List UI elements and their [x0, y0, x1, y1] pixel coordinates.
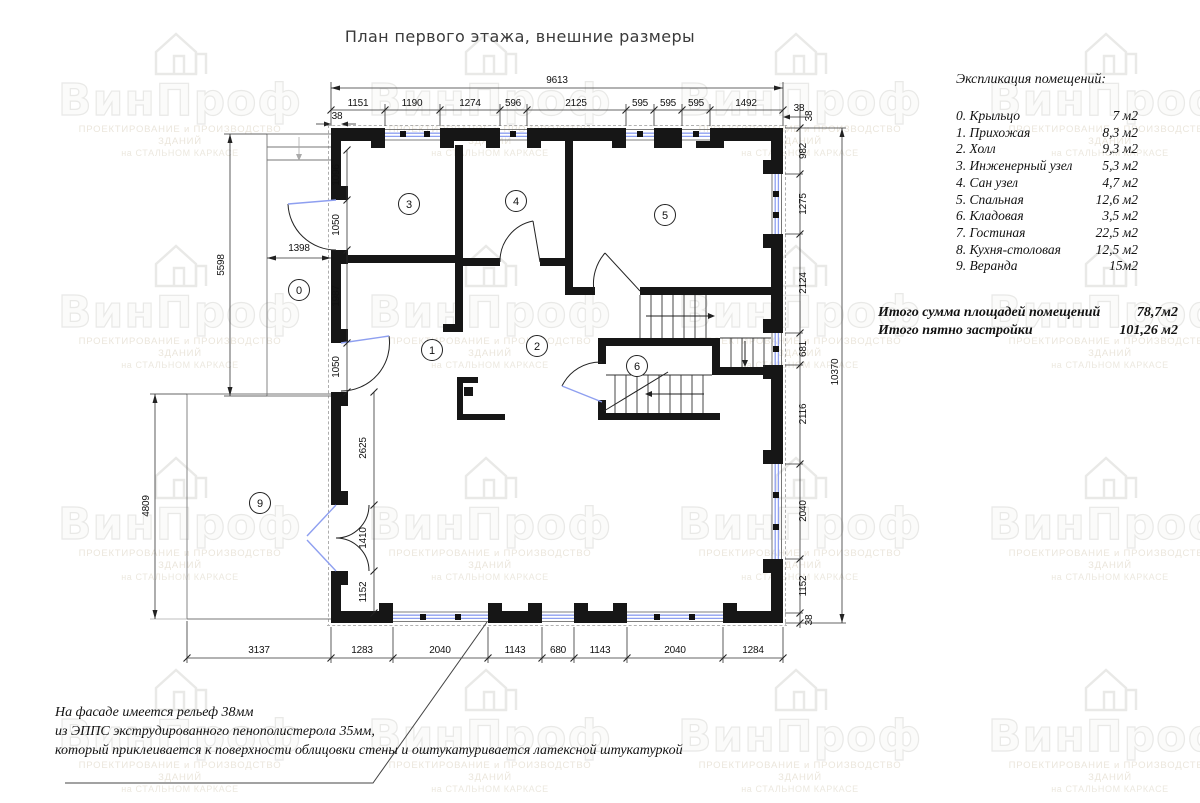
dim-label: 1274	[459, 98, 481, 109]
room-area: 5,3 м2	[1102, 158, 1138, 175]
dim-label: 4809	[141, 495, 152, 517]
dim-label: 1492	[735, 98, 757, 109]
dim-label: 2125	[565, 98, 587, 109]
dim-label: 1398	[288, 243, 310, 254]
total-row: Итого сумма площадей помещений78,7м2	[878, 304, 1178, 322]
explication-row: 4. Сан узел4,7 м2	[956, 175, 1138, 192]
room-area: 12,5 м2	[1096, 242, 1138, 259]
svg-text:6: 6	[634, 361, 640, 373]
svg-text:3: 3	[406, 199, 412, 211]
veranda-outline	[150, 394, 331, 619]
room-area: 4,7 м2	[1102, 175, 1138, 192]
explication-row: 8. Кухня-столовая12,5 м2	[956, 242, 1138, 259]
room-label: 5. Спальная	[956, 192, 1024, 209]
dim-label: 1284	[742, 645, 764, 656]
dim-label: 681	[798, 340, 809, 357]
cladding-dashed-line	[327, 125, 787, 626]
room-marker-hall: 2	[527, 336, 548, 357]
dim-label: 5598	[216, 254, 227, 276]
dim-label: 10370	[830, 358, 841, 385]
staircase	[604, 295, 771, 413]
svg-text:0: 0	[296, 285, 302, 297]
explication-heading: Экспликация помещений:	[956, 72, 1138, 88]
total-value: 101,26 м2	[1119, 322, 1178, 340]
dim-label: 38	[804, 614, 815, 625]
room-marker-engineering: 3	[399, 194, 420, 215]
svg-text:1: 1	[429, 345, 435, 357]
total-label: Итого сумма площадей помещений	[878, 304, 1100, 322]
dim-label: 1152	[798, 575, 809, 596]
dim-label: 2040	[429, 645, 451, 656]
svg-text:9: 9	[257, 498, 263, 510]
dim-label: 1096	[331, 164, 342, 186]
bathroom-door	[500, 221, 540, 262]
stair-up-arrow-icon	[646, 313, 715, 319]
room-label: 9. Веранда	[956, 258, 1018, 275]
svg-text:5: 5	[662, 210, 668, 222]
room-area: 8,3 м2	[1102, 125, 1138, 142]
dim-label: 1143	[505, 645, 526, 656]
room-label: 4. Сан узел	[956, 175, 1018, 192]
room-area: 22,5 м2	[1096, 225, 1138, 242]
dim-label: 596	[505, 98, 522, 109]
interior-walls	[341, 141, 771, 420]
dim-label: 1275	[798, 193, 809, 215]
dim-label: 2116	[798, 403, 809, 424]
dim-label: 9613	[546, 75, 568, 86]
dim-label: 1987	[331, 285, 342, 307]
storage-door	[562, 362, 602, 402]
total-label: Итого пятно застройки	[878, 322, 1033, 340]
explication-row: 3. Инженерный узел5,3 м2	[956, 158, 1138, 175]
stair-down-arrow-icon	[742, 341, 748, 367]
explication-row: 2. Холл9,3 м2	[956, 141, 1138, 158]
explication-row: 0. Крыльцо7 м2	[956, 108, 1138, 125]
dim-label: 1283	[351, 645, 373, 656]
page-title: План первого этажа, внешние размеры	[300, 27, 740, 46]
room-label: 7. Гостиная	[956, 225, 1025, 242]
dim-label: 1410	[358, 527, 369, 549]
facade-note-line: из ЭППС экструдированного пенополистерол…	[55, 722, 745, 741]
room-marker-hallway: 1	[422, 340, 443, 361]
dim-label: 2040	[798, 500, 809, 522]
dim-label: 38	[332, 111, 343, 122]
porch-entry-arrow-icon	[296, 137, 302, 161]
svg-text:4: 4	[513, 196, 519, 208]
stair-left-arrow-icon	[645, 391, 704, 397]
room-area: 9,3 м2	[1102, 141, 1138, 158]
dim-label: 38	[804, 110, 815, 121]
total-value: 78,7м2	[1137, 304, 1178, 322]
entrance-door	[341, 336, 390, 391]
porch-outline	[267, 134, 331, 396]
room-marker-porch: 0	[289, 280, 310, 301]
dim-label: 2040	[664, 645, 686, 656]
facade-note-line: На фасаде имеется рельеф 38мм	[55, 703, 745, 722]
dim-label: 1152	[358, 581, 369, 602]
total-row: Итого пятно застройки101,26 м2	[878, 322, 1178, 340]
dim-label: 1143	[590, 645, 611, 656]
dim-label: 1151	[348, 98, 369, 109]
room-label: 8. Кухня-столовая	[956, 242, 1061, 259]
room-area: 7 м2	[1113, 108, 1139, 125]
dim-label: 595	[660, 98, 677, 109]
room-area: 3,5 м2	[1102, 208, 1138, 225]
dim-label: 1050	[331, 214, 342, 236]
explication-row: 5. Спальная12,6 м2	[956, 192, 1138, 209]
room-marker-bedroom: 5	[655, 205, 676, 226]
dim-label: 2124	[798, 272, 809, 294]
dim-label: 1190	[402, 98, 423, 109]
dimension-labels: 9613 1151 1190 1274 596 2125 595 595 595…	[141, 75, 841, 656]
explication-row: 6. Кладовая3,5 м2	[956, 208, 1138, 225]
dim-label: 1050	[331, 356, 342, 378]
room-marker-bathroom: 4	[506, 191, 527, 212]
facade-note-line: который приклеивается к поверхности обли…	[55, 741, 745, 760]
room-marker-storage: 6	[627, 356, 648, 377]
room-label: 3. Инженерный узел	[956, 158, 1072, 175]
explication-row: 9. Веранда15м2	[956, 258, 1138, 275]
room-area: 15м2	[1109, 258, 1138, 275]
room-area: 12,6 м2	[1096, 192, 1138, 209]
windows	[385, 130, 782, 622]
dim-label: 595	[632, 98, 649, 109]
area-totals: Итого сумма площадей помещений78,7м2 Ито…	[878, 304, 1178, 340]
room-label: 1. Прихожая	[956, 125, 1030, 142]
room-explication: Экспликация помещений: 0. Крыльцо7 м2 1.…	[956, 72, 1138, 275]
svg-text:2: 2	[534, 341, 540, 353]
room-label: 6. Кладовая	[956, 208, 1024, 225]
explication-row: 1. Прихожая8,3 м2	[956, 125, 1138, 142]
room-label: 0. Крыльцо	[956, 108, 1020, 125]
dim-label: 2625	[358, 437, 369, 459]
dim-label: 595	[688, 98, 705, 109]
dim-label: 680	[550, 645, 567, 656]
bedroom-door	[593, 253, 640, 291]
dim-label: 982	[798, 142, 809, 159]
dim-label: 3137	[248, 645, 270, 656]
room-label: 2. Холл	[956, 141, 996, 158]
explication-row: 7. Гостиная22,5 м2	[956, 225, 1138, 242]
room-marker-veranda: 9	[250, 493, 271, 514]
floor-plan-page: { "title": "План первого этажа, внешние …	[0, 0, 1200, 803]
facade-note: На фасаде имеется рельеф 38мм из ЭППС эк…	[55, 703, 745, 760]
